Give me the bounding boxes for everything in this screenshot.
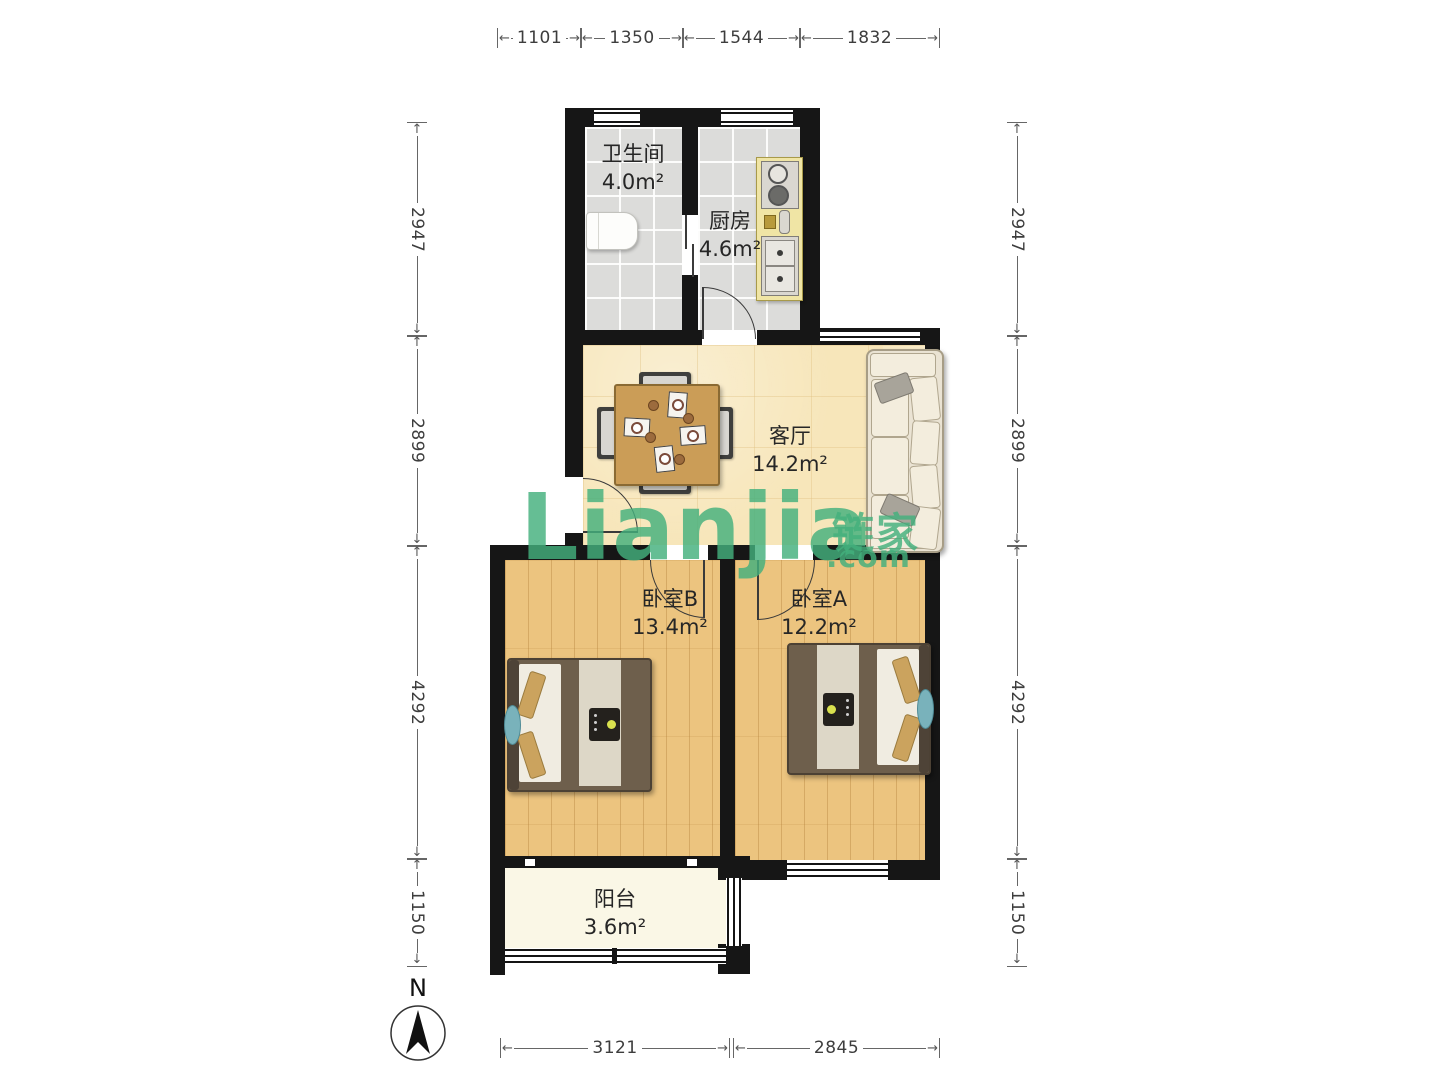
- dimension-value: 1150: [1007, 886, 1027, 939]
- wall: [708, 545, 755, 560]
- dimension-value: 2845: [810, 1038, 863, 1058]
- dimension-value: 4292: [407, 676, 427, 729]
- arrow-right-icon: →: [926, 32, 939, 45]
- dimension-top-3: ← 1544 →: [682, 28, 801, 48]
- counter-item: [779, 210, 790, 234]
- wall: [490, 545, 650, 560]
- counter-item: [764, 215, 776, 229]
- dimension-top-2: ← 1350 →: [580, 28, 684, 48]
- room-area: 12.2m²: [781, 614, 857, 642]
- living-room-label: 客厅 14.2m²: [752, 423, 828, 478]
- compass-icon: [389, 1004, 447, 1062]
- cup: [683, 413, 694, 424]
- wall: [682, 127, 698, 215]
- dimension-bottom-2: ← 2845 →: [733, 1038, 940, 1058]
- balcony-window-right: [726, 878, 742, 946]
- bed-tray: [823, 693, 854, 726]
- arrow-left-icon: ←: [581, 32, 594, 45]
- kitchen-window: [721, 110, 793, 125]
- room-name: 卫生间: [602, 141, 665, 169]
- toilet-tank: [587, 213, 599, 249]
- compass-north-label: N: [390, 974, 446, 1002]
- bedroom-a-label: 卧室A 12.2m²: [781, 586, 857, 641]
- bed-bedroom-a: [787, 643, 931, 775]
- sofa-back-cushion: [909, 420, 940, 466]
- dimension-right-4: ↑ 1150 ↓: [1007, 858, 1027, 967]
- sink-basin-icon: [768, 185, 789, 206]
- arrow-up-icon: ↑: [412, 859, 423, 872]
- placemat: [679, 425, 706, 446]
- bed-bedroom-b: [507, 658, 652, 792]
- room-name: 卧室A: [781, 586, 857, 614]
- arrow-up-icon: ↑: [1012, 336, 1023, 349]
- dimension-value: 1350: [605, 28, 658, 48]
- arrow-right-icon: →: [716, 1042, 729, 1055]
- arrow-up-icon: ↑: [412, 336, 423, 349]
- room-area: 3.6m²: [584, 914, 646, 942]
- dimension-bottom-1: ← 3121 →: [500, 1038, 730, 1058]
- dimension-value: 1544: [715, 28, 768, 48]
- bed-tray: [589, 708, 620, 741]
- room-area: 4.0m²: [602, 169, 665, 197]
- kitchen-door-leaf: [702, 287, 704, 339]
- bathroom-sliding-door: [685, 215, 687, 249]
- arrow-down-icon: ↓: [1012, 953, 1023, 966]
- room-name: 客厅: [752, 423, 828, 451]
- arrow-up-icon: ↑: [412, 123, 423, 136]
- arrow-up-icon: ↑: [1012, 859, 1023, 872]
- sofa-back-cushion: [909, 376, 941, 423]
- dimension-left-3: ↑ 4292 ↓: [407, 545, 427, 860]
- dimension-right-1: ↑ 2947 ↓: [1007, 122, 1027, 337]
- dimension-value: 2947: [1007, 203, 1027, 256]
- wall: [720, 560, 735, 858]
- dimension-value: 2899: [1007, 414, 1027, 467]
- wall: [565, 108, 585, 345]
- arrow-up-icon: ↑: [412, 546, 423, 559]
- sofa: [866, 349, 944, 553]
- arrow-up-icon: ↑: [1012, 123, 1023, 136]
- wall: [490, 545, 505, 975]
- wall: [682, 275, 698, 332]
- bedroom-a-door-leaf: [757, 560, 759, 620]
- dimension-value: 3121: [588, 1038, 641, 1058]
- arrow-left-icon: ←: [734, 1042, 747, 1055]
- bathroom-label: 卫生间 4.0m²: [602, 141, 665, 196]
- dimension-top-4: ← 1832 →: [799, 28, 940, 48]
- bed-cushion: [504, 705, 521, 745]
- dimension-value: 2947: [407, 203, 427, 256]
- bathroom-sliding-door: [692, 244, 694, 277]
- placemat: [654, 445, 676, 473]
- toilet: [586, 212, 638, 250]
- balcony-label: 阳台 3.6m²: [584, 886, 646, 941]
- room-area: 13.4m²: [632, 614, 708, 642]
- arrow-left-icon: ←: [501, 1042, 514, 1055]
- cup: [648, 400, 659, 411]
- floorplan-canvas: 卫生间 4.0m² 厨房 4.6m² 客厅 14.2m² 卧室B 13.4m² …: [0, 0, 1440, 1080]
- wall: [565, 330, 702, 345]
- sofa-seat: [871, 437, 909, 495]
- wall-notch: [686, 858, 698, 867]
- room-area: 4.6m²: [699, 236, 761, 264]
- living-room-window: [820, 330, 920, 343]
- dimension-left-2: ↑ 2899 ↓: [407, 335, 427, 547]
- bedroom-b-label: 卧室B 13.4m²: [632, 586, 708, 641]
- stove-burner: [765, 266, 795, 292]
- bed-cushion: [917, 689, 934, 729]
- room-name: 厨房: [699, 208, 761, 236]
- arrow-up-icon: ↑: [1012, 546, 1023, 559]
- wall: [718, 856, 750, 880]
- dimension-top-1: ← 1101 →: [497, 28, 582, 48]
- bathroom-window: [594, 110, 640, 125]
- stove-burner: [765, 240, 795, 266]
- dimension-value: 2899: [407, 414, 427, 467]
- dimension-left-1: ↑ 2947 ↓: [407, 122, 427, 337]
- entrance-door-leaf: [583, 531, 638, 533]
- cup: [674, 454, 685, 465]
- room-name: 卧室B: [632, 586, 708, 614]
- dimension-value: 1101: [513, 28, 566, 48]
- wall-notch: [524, 858, 536, 867]
- room-area: 14.2m²: [752, 451, 828, 479]
- arrow-left-icon: ←: [498, 32, 511, 45]
- arrow-right-icon: →: [926, 1042, 939, 1055]
- window-divider: [612, 948, 617, 964]
- bedroom-a-window: [787, 862, 888, 878]
- dimension-right-2: ↑ 2899 ↓: [1007, 335, 1027, 547]
- room-name: 阳台: [584, 886, 646, 914]
- kitchen-label: 厨房 4.6m²: [699, 208, 761, 263]
- dimension-value: 4292: [1007, 676, 1027, 729]
- dimension-value: 1832: [843, 28, 896, 48]
- wall: [757, 330, 818, 345]
- dimension-left-4: ↑ 1150 ↓: [407, 858, 427, 967]
- arrow-left-icon: ←: [800, 32, 813, 45]
- wall: [888, 860, 940, 880]
- arrow-down-icon: ↓: [412, 953, 423, 966]
- dimension-right-3: ↑ 4292 ↓: [1007, 545, 1027, 860]
- arrow-left-icon: ←: [683, 32, 696, 45]
- dimension-value: 1150: [407, 886, 427, 939]
- cup: [645, 432, 656, 443]
- wall: [800, 108, 820, 345]
- wall: [565, 330, 583, 477]
- faucet-icon: [768, 164, 788, 184]
